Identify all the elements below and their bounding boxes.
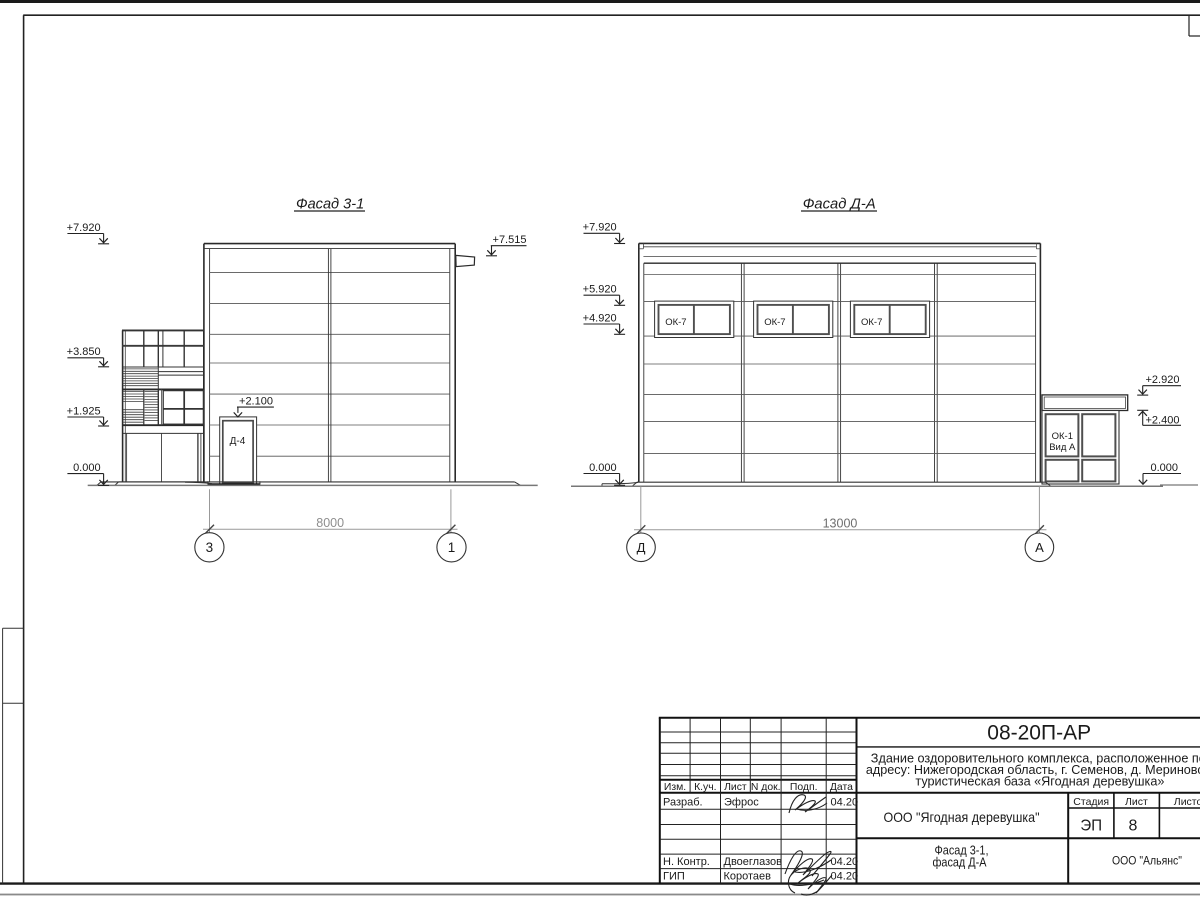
svg-text:08-20П-АР: 08-20П-АР <box>987 722 1091 745</box>
svg-text:фасад Д-А: фасад Д-А <box>933 856 988 870</box>
svg-text:+2.400: +2.400 <box>1146 415 1180 427</box>
svg-text:Н. Контр.: Н. Контр. <box>663 856 710 868</box>
svg-text:Д: Д <box>637 540 646 555</box>
svg-text:ОК-7: ОК-7 <box>861 317 882 328</box>
svg-text:ОК-7: ОК-7 <box>764 317 785 328</box>
svg-text:+1.925: +1.925 <box>67 405 101 417</box>
svg-text:туристическая база «Ягодная де: туристическая база «Ягодная деревушка» <box>915 773 1164 788</box>
svg-text:К.уч.: К.уч. <box>694 782 716 793</box>
svg-text:Лист: Лист <box>724 782 747 793</box>
svg-text:13000: 13000 <box>823 516 858 530</box>
svg-text:0.000: 0.000 <box>73 462 101 474</box>
svg-text:Д-4: Д-4 <box>230 436 246 447</box>
svg-text:Фасад Д-А: Фасад Д-А <box>803 195 876 212</box>
svg-text:8000: 8000 <box>316 516 344 530</box>
svg-text:+4.920: +4.920 <box>583 312 617 324</box>
svg-text:1: 1 <box>448 540 456 555</box>
svg-text:+2.100: +2.100 <box>239 396 273 408</box>
svg-text:ЭП: ЭП <box>1080 817 1102 834</box>
svg-text:Изм.: Изм. <box>664 782 686 793</box>
svg-text:N док.: N док. <box>751 782 781 793</box>
svg-text:Эфрос: Эфрос <box>724 796 759 808</box>
svg-text:Разраб.: Разраб. <box>663 796 703 808</box>
svg-text:04.20: 04.20 <box>831 871 859 883</box>
svg-text:Листов: Листов <box>1174 796 1200 808</box>
svg-text:+3.850: +3.850 <box>67 346 101 358</box>
svg-text:ОК-1: ОК-1 <box>1052 431 1073 442</box>
svg-text:+7.920: +7.920 <box>583 222 617 234</box>
svg-text:Лист: Лист <box>1125 796 1148 808</box>
svg-text:3: 3 <box>206 540 214 555</box>
svg-text:0.000: 0.000 <box>1150 462 1178 474</box>
svg-text:ГИП: ГИП <box>663 871 685 883</box>
svg-text:+7.515: +7.515 <box>493 234 527 246</box>
svg-text:Дата: Дата <box>830 782 853 793</box>
svg-text:ООО "Альянс": ООО "Альянс" <box>1112 853 1182 867</box>
svg-text:А: А <box>1035 540 1044 555</box>
svg-text:+5.920: +5.920 <box>583 284 617 296</box>
svg-text:Вид А: Вид А <box>1049 442 1076 453</box>
svg-text:0.000: 0.000 <box>589 462 617 474</box>
svg-text:Коротаев: Коротаев <box>724 871 772 883</box>
svg-text:8: 8 <box>1129 817 1138 834</box>
svg-text:04.20: 04.20 <box>831 796 859 808</box>
svg-text:Стадия: Стадия <box>1073 796 1109 808</box>
svg-text:ОК-7: ОК-7 <box>665 317 686 328</box>
svg-text:+2.920: +2.920 <box>1146 374 1180 386</box>
svg-text:+7.920: +7.920 <box>67 222 101 234</box>
svg-text:Подп.: Подп. <box>790 782 818 793</box>
svg-text:Фасад 3-1: Фасад 3-1 <box>296 195 364 212</box>
svg-text:Двоеглазов: Двоеглазов <box>724 856 783 868</box>
svg-text:04.20: 04.20 <box>831 856 859 868</box>
svg-text:ООО "Ягодная деревушка": ООО "Ягодная деревушка" <box>884 809 1040 825</box>
